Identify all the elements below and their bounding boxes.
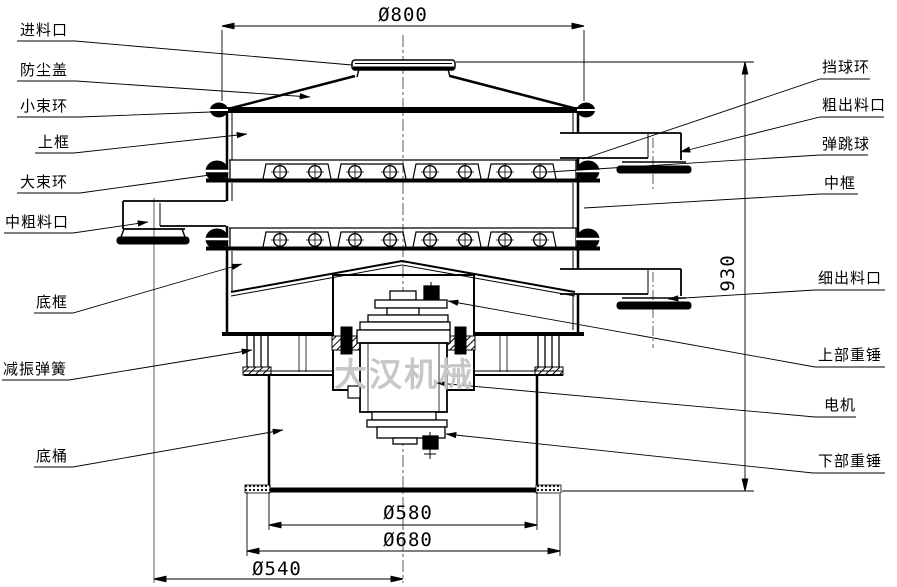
dim-outlet-circle-diameter: Ø540: [252, 558, 302, 580]
label-dust-cover: 防尘盖: [20, 61, 68, 79]
label-motor: 电机: [824, 396, 856, 414]
dimension-texts: Ø800 930 Ø580 Ø680 Ø540: [252, 4, 739, 580]
screen-deck-upper: [205, 160, 600, 182]
label-middle-frame: 中框: [824, 174, 856, 192]
label-medium-coarse-outlet: 中粗料口: [5, 213, 69, 231]
label-bottom-frame: 底框: [36, 293, 68, 311]
dim-overall-height: 930: [717, 254, 739, 291]
machine-line-art: Ø800 930 Ø580 Ø680 Ø540: [0, 0, 897, 587]
label-base-barrel: 底桶: [36, 447, 68, 465]
screen-deck-lower: [205, 228, 600, 250]
label-small-clamp-ring: 小束环: [20, 97, 68, 115]
fine-outlet-duct: [560, 269, 691, 309]
label-damping-spring: 减振弹簧: [3, 360, 67, 378]
label-lower-weight: 下部重锤: [818, 452, 882, 470]
dim-barrel-diameter: Ø580: [383, 502, 433, 524]
vibrating-screen-drawing: Ø800 930 Ø580 Ø680 Ø540 大汉机械 进料口 防尘盖 小束环…: [0, 0, 897, 587]
dim-top-diameter: Ø800: [378, 4, 428, 26]
label-large-clamp-ring: 大束环: [20, 173, 68, 191]
label-coarse-outlet: 粗出料口: [822, 96, 886, 114]
label-fine-outlet: 细出料口: [818, 269, 882, 287]
label-upper-weight: 上部重锤: [818, 346, 882, 364]
lower-weight-stack: [367, 412, 447, 459]
label-upper-frame: 上框: [38, 133, 70, 151]
label-ball-stop-ring: 挡球环: [822, 58, 870, 76]
upper-weight-stack: [357, 282, 450, 343]
label-bouncing-ball: 弹跳球: [822, 135, 870, 153]
dust-cover-and-inlet: [210, 60, 595, 118]
dim-base-flange-diameter: Ø680: [383, 529, 433, 551]
watermark: 大汉机械: [334, 348, 474, 396]
label-feed-inlet: 进料口: [20, 21, 68, 39]
